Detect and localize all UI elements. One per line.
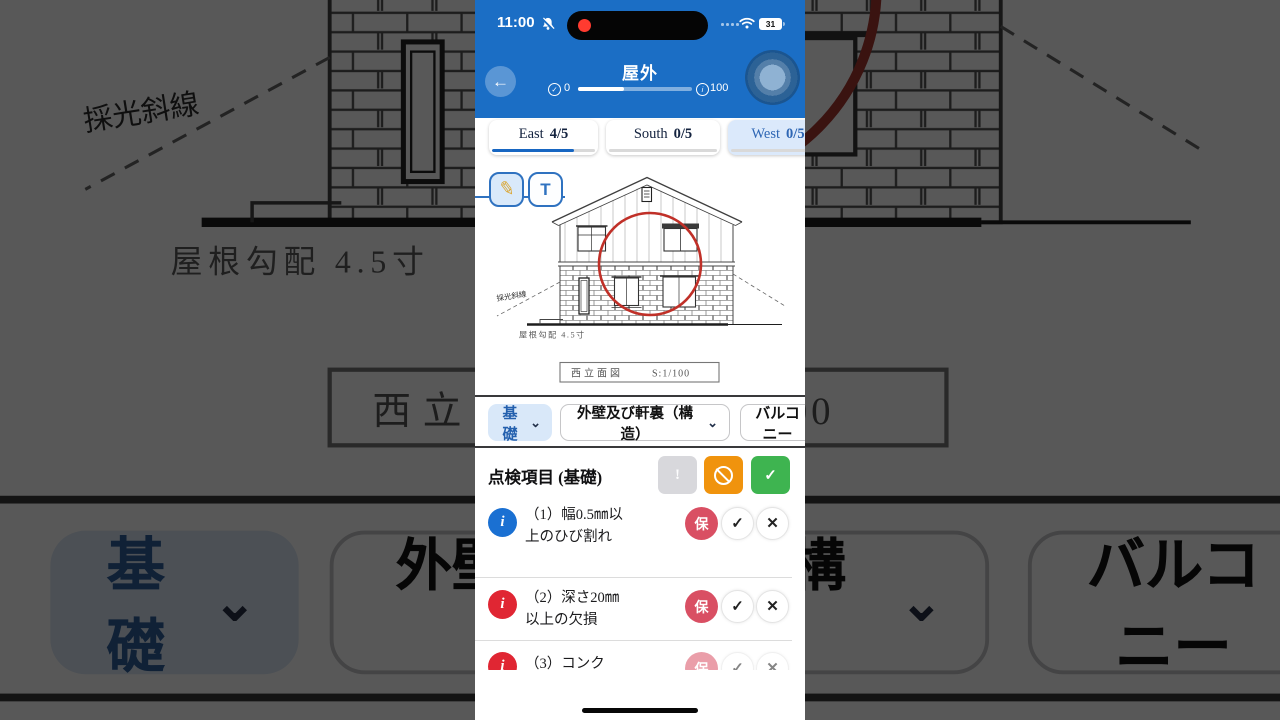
cross-button[interactable]: ✕ xyxy=(756,507,789,540)
caption-scale: S:1/100 xyxy=(652,369,690,380)
battery-percent: 31 xyxy=(766,19,775,29)
tab-progress-fill xyxy=(492,149,574,153)
status-time: 11:00 xyxy=(497,14,535,31)
chevron-down-icon: ⌄ xyxy=(214,571,256,633)
app-header: 11:00 31 ← 屋外 xyxy=(475,0,805,118)
caption-box: 西立面図 S:1/100 xyxy=(560,363,719,383)
progress-start-value: 0 xyxy=(564,82,570,94)
category-chip-outer-wall[interactable]: 外壁及び軒裏（構造） ⌄ xyxy=(560,404,730,441)
category-chip-balcony: バルコニー ⌄ xyxy=(1028,531,1280,675)
info-icon-button[interactable]: i xyxy=(488,508,517,537)
home-indicator[interactable] xyxy=(582,708,698,713)
cross-button[interactable]: ✕ xyxy=(756,590,789,623)
caption-title: 西立面図 xyxy=(571,367,623,380)
divider xyxy=(475,446,805,448)
phone-screen: 11:00 31 ← 屋外 xyxy=(475,0,805,720)
chevron-down-icon: ⌄ xyxy=(530,415,541,431)
pencil-icon: ✎ xyxy=(497,177,516,202)
bulk-not-applicable-button[interactable] xyxy=(704,456,743,494)
tab-label: East4/5 xyxy=(489,126,598,143)
checklist-title: 点検項目 (基礎) xyxy=(488,464,602,488)
progress-fill xyxy=(578,87,624,92)
item-text: （1）幅0.5㎜以上のひび割れ xyxy=(525,505,629,549)
cellular-signal-icon xyxy=(721,23,739,26)
pencil-tool-button[interactable]: ✎ xyxy=(489,172,524,207)
text-tool-label: T xyxy=(540,180,550,200)
tab-label: West0/5 xyxy=(728,126,805,143)
video-frame: 11:00 31 ← 屋外 xyxy=(0,0,1280,720)
category-chip-foundation[interactable]: 基礎 ⌄ xyxy=(488,404,552,441)
text-tool-button[interactable]: T xyxy=(528,172,563,207)
hold-button[interactable]: 保 xyxy=(685,590,718,623)
warning-icon: ! xyxy=(675,467,680,484)
roof-slope-label: 屋根勾配 4.5寸 xyxy=(519,330,586,340)
bell-muted-icon xyxy=(541,16,555,31)
tab-progress-track xyxy=(731,149,805,153)
bulk-warning-button[interactable]: ! xyxy=(658,456,697,494)
hold-button[interactable]: 保 xyxy=(685,507,718,540)
category-chip-foundation: 基礎 ⌄ xyxy=(50,531,298,675)
wifi-icon xyxy=(739,17,755,29)
tab-west[interactable]: West0/5 xyxy=(728,120,805,155)
check-button[interactable]: ✓ xyxy=(721,590,754,623)
cross-icon: ✕ xyxy=(766,597,779,616)
tab-east[interactable]: East4/5 xyxy=(489,120,598,155)
info-icon-button[interactable]: i xyxy=(488,590,517,619)
battery-icon: 31 xyxy=(759,18,782,30)
bulk-ok-button[interactable]: ✓ xyxy=(751,456,790,494)
check-icon: ✓ xyxy=(731,514,744,533)
check-icon: ✓ xyxy=(764,466,777,485)
capture-button[interactable] xyxy=(745,50,800,105)
divider xyxy=(475,395,805,397)
progress-end-value: 100 xyxy=(710,82,728,94)
progress-done-icon: ✓ xyxy=(548,83,561,96)
chevron-down-icon: ⌄ xyxy=(900,571,942,633)
roof-slope-label: 屋根勾配 4.5寸 xyxy=(171,245,430,280)
progress-track xyxy=(578,87,692,92)
light-line-label: 採光斜線 xyxy=(81,87,201,138)
bottom-safe-area xyxy=(475,670,805,720)
category-chip-balcony[interactable]: バルコニー ⌄ xyxy=(740,404,805,441)
check-icon: ✓ xyxy=(731,597,744,616)
progress-info-icon: i xyxy=(696,83,709,96)
chevron-down-icon: ⌄ xyxy=(707,415,718,431)
tab-label: South0/5 xyxy=(606,126,720,143)
cross-icon: ✕ xyxy=(766,514,779,533)
ban-icon xyxy=(714,466,733,485)
recording-dot-icon xyxy=(578,19,591,32)
check-button[interactable]: ✓ xyxy=(721,507,754,540)
item-text: （2）深さ20㎜以上の欠損 xyxy=(525,588,629,632)
tab-progress-track xyxy=(609,149,717,153)
tab-progress-track xyxy=(492,149,595,153)
checklist-item-2: i （2）深さ20㎜以上の欠損 保 ✓ ✕ xyxy=(475,578,805,641)
checklist-item-1: i （1）幅0.5㎜以上のひび割れ 保 ✓ ✕ xyxy=(475,500,805,578)
dynamic-island xyxy=(567,11,708,40)
tab-south[interactable]: South0/5 xyxy=(606,120,720,155)
phone-wrap: 11:00 31 ← 屋外 xyxy=(475,0,805,720)
